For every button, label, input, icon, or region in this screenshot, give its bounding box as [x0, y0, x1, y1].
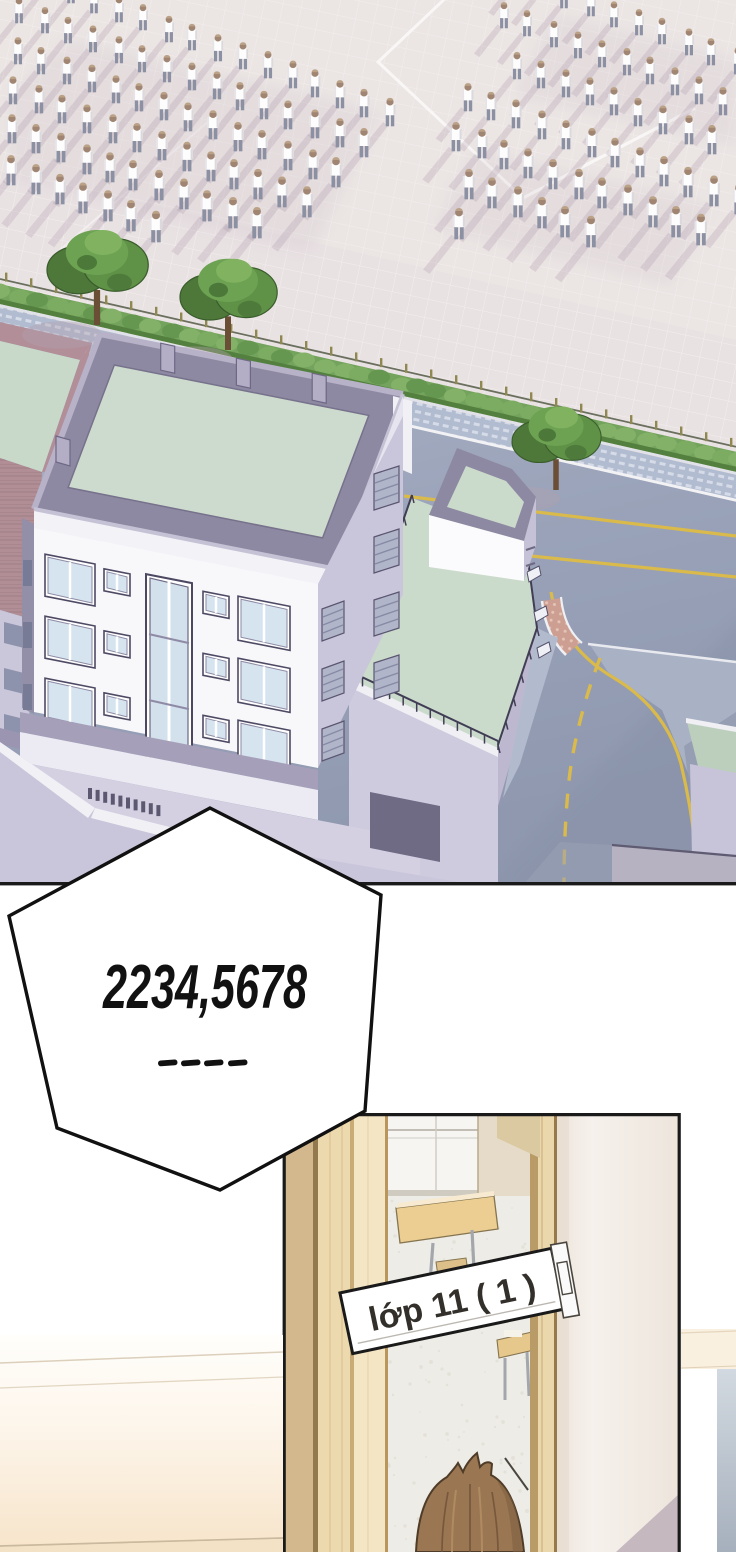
svg-text:2234,5678: 2234,5678 [102, 953, 307, 1022]
